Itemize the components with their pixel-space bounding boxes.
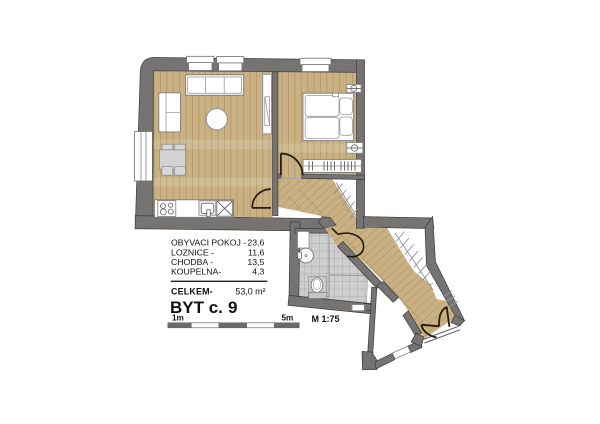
svg-text:23,6: 23,6 — [247, 237, 264, 247]
svg-text:KOUPELNA-: KOUPELNA- — [171, 266, 221, 276]
svg-text:4,3: 4,3 — [252, 266, 264, 276]
svg-text:53,0 m²: 53,0 m² — [235, 287, 265, 297]
svg-text:5m: 5m — [282, 314, 294, 323]
svg-text:M 1:75: M 1:75 — [312, 314, 340, 324]
svg-text:1m: 1m — [172, 314, 184, 323]
svg-text:9: 9 — [228, 298, 237, 317]
svg-text:CELKEM-: CELKEM- — [171, 287, 213, 297]
svg-text:OBYVACI POKOJ -: OBYVACI POKOJ - — [171, 237, 246, 247]
